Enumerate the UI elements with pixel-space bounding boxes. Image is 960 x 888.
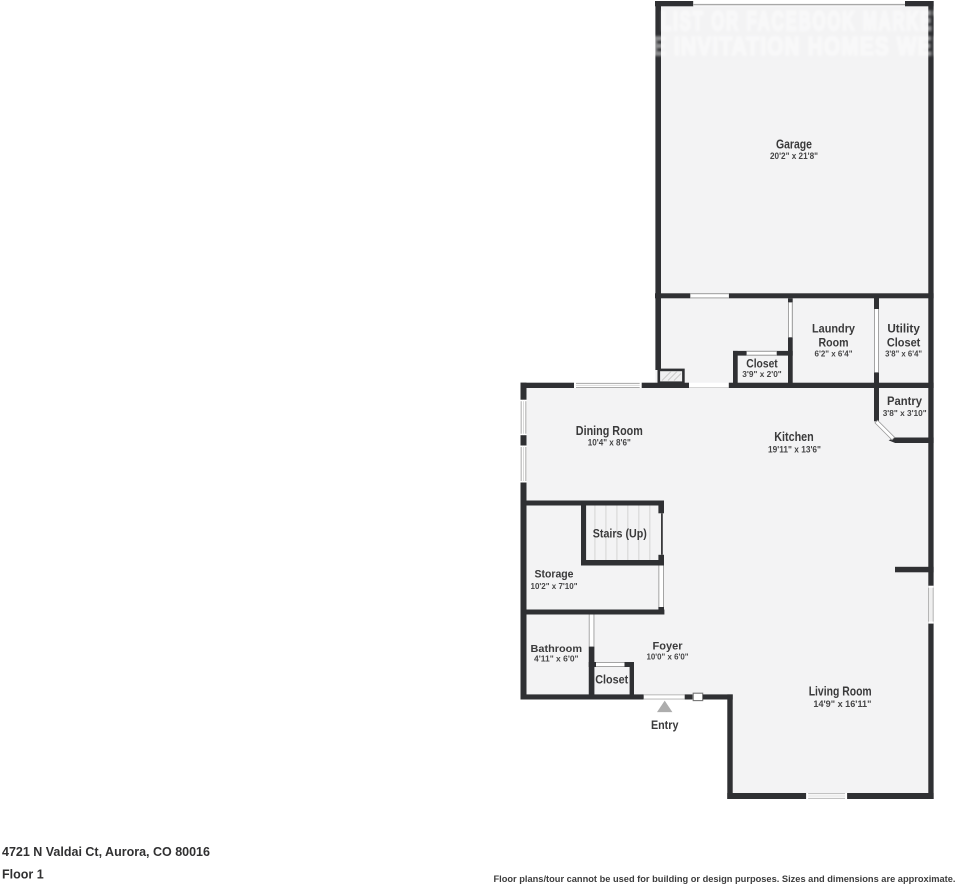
svg-text:4721 N Valdai Ct, Aurora, CO 8: 4721 N Valdai Ct, Aurora, CO 80016 bbox=[2, 845, 210, 859]
svg-text:10'0" x 6'0": 10'0" x 6'0" bbox=[647, 652, 689, 662]
svg-text:Kitchen: Kitchen bbox=[774, 430, 814, 444]
svg-text:Utility: Utility bbox=[887, 323, 920, 335]
svg-text:Bathroom: Bathroom bbox=[531, 643, 583, 655]
svg-text:4'11" x 6'0": 4'11" x 6'0" bbox=[534, 655, 579, 664]
svg-text:10'2" x 7'10": 10'2" x 7'10" bbox=[531, 581, 578, 591]
svg-text:3'9" x 2'0": 3'9" x 2'0" bbox=[742, 369, 782, 379]
svg-text:E INVITATION HOMES WEBSITE: E INVITATION HOMES WEBSITE bbox=[652, 32, 960, 61]
svg-text:Floor plans/tour cannot be use: Floor plans/tour cannot be used for buil… bbox=[494, 874, 956, 884]
svg-text:Entry: Entry bbox=[651, 720, 679, 732]
svg-text:Storage: Storage bbox=[535, 569, 574, 581]
svg-text:6'2" x 6'4": 6'2" x 6'4" bbox=[815, 349, 853, 359]
svg-text:Garage: Garage bbox=[776, 136, 812, 151]
svg-text:Dining Room: Dining Room bbox=[576, 424, 643, 438]
svg-text:20'2" x 21'8": 20'2" x 21'8" bbox=[770, 151, 818, 162]
svg-text:Laundry: Laundry bbox=[812, 323, 856, 335]
svg-text:3'8" x 6'4": 3'8" x 6'4" bbox=[885, 349, 922, 359]
svg-text:Floor 1: Floor 1 bbox=[2, 868, 44, 882]
svg-text:Pantry: Pantry bbox=[887, 396, 923, 408]
svg-text:19'11" x 13'6": 19'11" x 13'6" bbox=[768, 444, 821, 454]
svg-text:Closet: Closet bbox=[595, 675, 628, 687]
svg-text:Stairs (Up): Stairs (Up) bbox=[593, 529, 647, 541]
svg-text:Living Room: Living Room bbox=[809, 684, 872, 698]
svg-text:10'4" x 8'6": 10'4" x 8'6" bbox=[588, 438, 631, 448]
svg-text:14'9" x 16'11": 14'9" x 16'11" bbox=[813, 699, 871, 709]
svg-text:3'8" x 3'10": 3'8" x 3'10" bbox=[883, 408, 927, 418]
